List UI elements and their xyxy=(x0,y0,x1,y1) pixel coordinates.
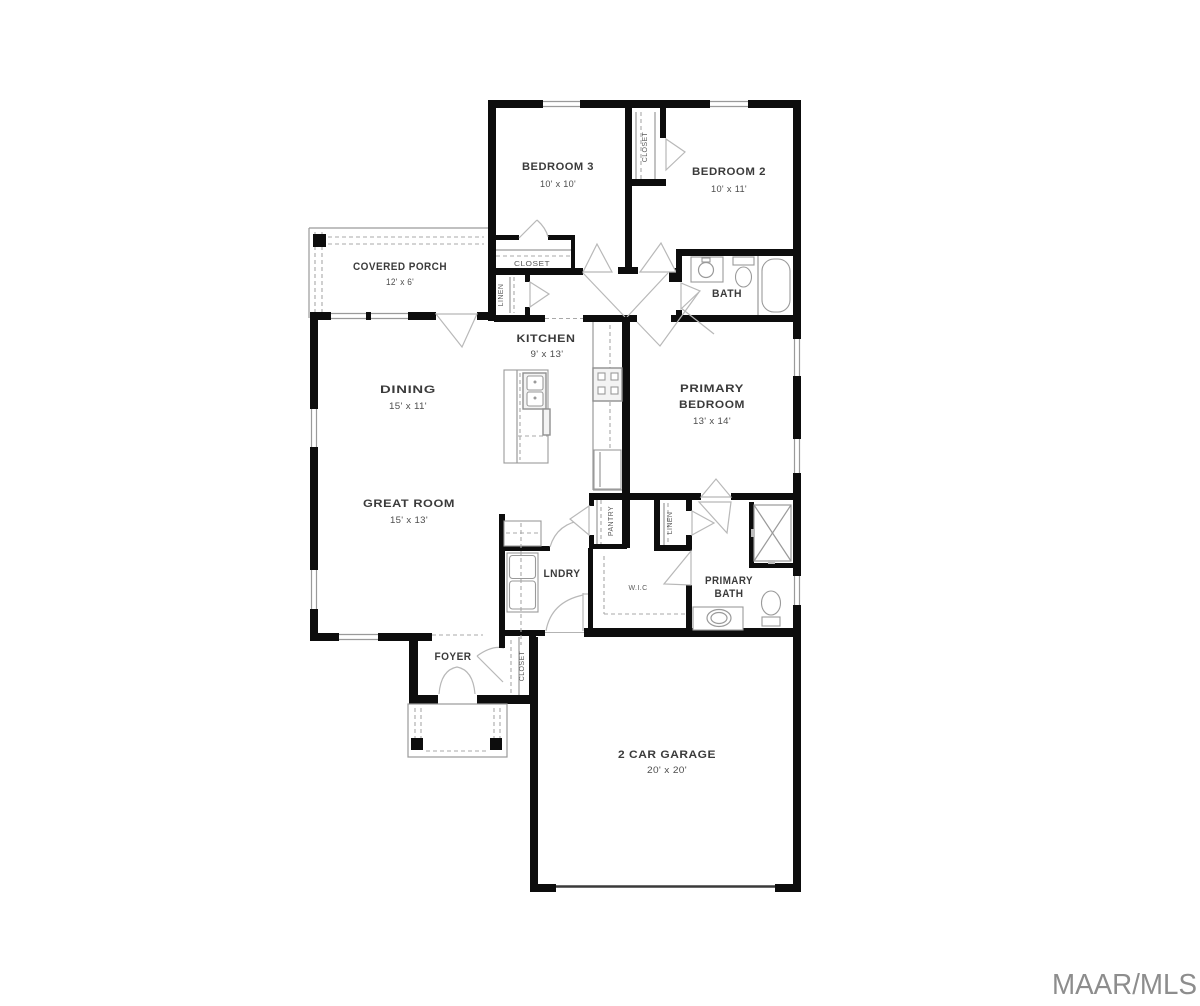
svg-text:BATH: BATH xyxy=(715,588,744,600)
svg-text:BEDROOM 3: BEDROOM 3 xyxy=(522,161,594,173)
svg-text:15' x 11': 15' x 11' xyxy=(389,401,427,411)
svg-text:PRIMARY: PRIMARY xyxy=(705,575,753,587)
svg-text:LINEN: LINEN xyxy=(498,284,505,307)
svg-text:10' x 10': 10' x 10' xyxy=(540,179,576,189)
svg-text:20' x 20': 20' x 20' xyxy=(647,765,687,775)
svg-text:2 CAR GARAGE: 2 CAR GARAGE xyxy=(618,749,716,761)
svg-text:CLOSET: CLOSET xyxy=(519,650,526,681)
svg-text:BATH: BATH xyxy=(712,288,742,300)
svg-text:LNDRY: LNDRY xyxy=(544,568,581,580)
svg-text:15' x 13': 15' x 13' xyxy=(390,515,428,525)
svg-text:DINING: DINING xyxy=(380,384,436,396)
svg-text:KITCHEN: KITCHEN xyxy=(517,333,576,345)
svg-text:FOYER: FOYER xyxy=(435,651,472,663)
svg-text:12' x 6': 12' x 6' xyxy=(386,277,414,287)
svg-text:GREAT ROOM: GREAT ROOM xyxy=(363,498,455,510)
svg-text:10' x 11': 10' x 11' xyxy=(711,184,747,194)
svg-text:MAAR/MLS: MAAR/MLS xyxy=(1052,969,1197,1001)
svg-text:9' x 13': 9' x 13' xyxy=(531,349,564,359)
svg-text:LINEN: LINEN xyxy=(667,512,674,535)
svg-text:CLOSET: CLOSET xyxy=(642,131,649,162)
svg-text:CLOSET: CLOSET xyxy=(514,261,550,268)
svg-text:COVERED PORCH: COVERED PORCH xyxy=(353,261,447,273)
svg-text:PRIMARY: PRIMARY xyxy=(680,383,744,395)
svg-text:W.I.C: W.I.C xyxy=(628,585,647,592)
svg-text:BEDROOM: BEDROOM xyxy=(679,399,745,411)
svg-text:13' x 14': 13' x 14' xyxy=(693,416,731,426)
svg-text:PANTRY: PANTRY xyxy=(608,506,615,536)
svg-text:BEDROOM 2: BEDROOM 2 xyxy=(692,166,766,178)
